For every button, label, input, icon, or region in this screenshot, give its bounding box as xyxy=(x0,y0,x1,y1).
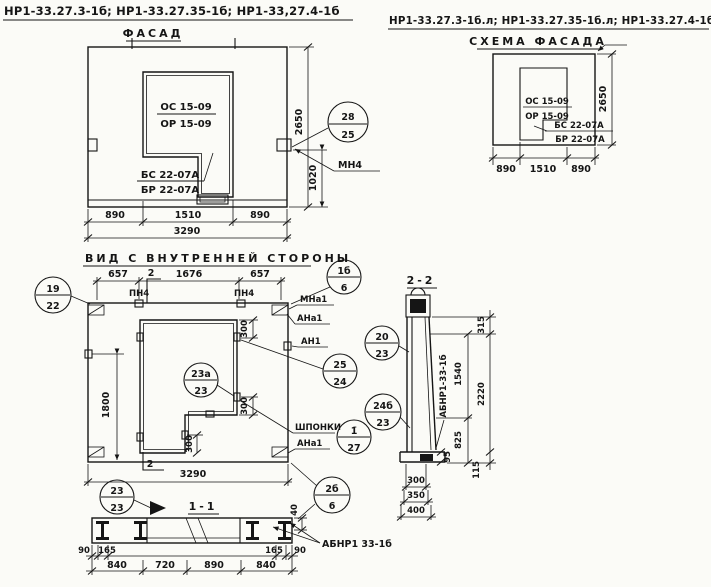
doc-title-left: НР1-33.27.3-1б; НР1-33.27.35-1б; НР1-33,… xyxy=(4,4,340,18)
svg-text:1̄: 1̄ xyxy=(351,426,358,437)
dim-350: 350 xyxy=(407,491,425,501)
dim-1800: 1800 xyxy=(101,391,112,418)
label-keys: ШПОНКИ xyxy=(295,423,341,433)
svg-text:23: 23 xyxy=(376,418,389,429)
svg-text:2б: 2б xyxy=(325,484,339,495)
pn4-left: ПН4 xyxy=(129,289,149,299)
svg-text:6: 6 xyxy=(341,283,348,294)
dim-90-right: 90 xyxy=(294,546,306,556)
schema-window-mark-top: ОС 15-09 xyxy=(525,97,569,107)
schema-sill-mark-bottom: БР 22-07А xyxy=(555,135,605,145)
facade-dim-height: 2650 xyxy=(294,108,305,135)
pn4-right: ПН4 xyxy=(234,289,254,299)
section22-mark: АБНР1-33-1б xyxy=(438,354,449,417)
schema-dim-height: 2650 xyxy=(598,85,609,112)
svg-text:23: 23 xyxy=(110,486,123,497)
svg-text:22: 22 xyxy=(46,301,59,312)
dim-657-right: 657 xyxy=(250,269,270,280)
dim-40: 40 xyxy=(290,504,300,516)
header-right: НР1-33.27.3-1б.л; НР1-33.27.35-1б.л; НР1… xyxy=(388,15,711,49)
dim-3290-internal: 3290 xyxy=(180,469,207,480)
drawing-sheet: НР1-33.27.3-1б; НР1-33.27.35-1б; НР1-33,… xyxy=(0,0,711,587)
section-2-flag-bottom: 2 xyxy=(143,452,164,470)
svg-text:20: 20 xyxy=(375,332,389,343)
facade-dim-left: 890 xyxy=(105,210,125,221)
dim-1540: 1540 xyxy=(454,362,464,386)
dim-115: 115 xyxy=(472,461,482,479)
svg-text:27: 27 xyxy=(347,443,360,454)
svg-text:1б: 1б xyxy=(337,266,351,277)
facade-view: ОС 15-09 ОР 15-09 БС 22-07А БР 22-07А 89… xyxy=(84,38,380,242)
dim-400: 400 xyxy=(407,506,425,516)
facade-left-anchor xyxy=(88,139,97,151)
dim-300-s22: 300 xyxy=(407,476,425,486)
callout-1-27: 1̄ 27 xyxy=(337,420,371,454)
callout-24b-23: 24б 23 xyxy=(365,394,410,430)
dim-1676: 1676 xyxy=(176,269,203,280)
svg-text:23: 23 xyxy=(194,386,207,397)
dim-165-left: 165 xyxy=(98,546,116,556)
svg-text:23а: 23а xyxy=(191,369,211,380)
doc-title-right: НР1-33.27.3-1б.л; НР1-33.27.35-1б.л; НР1… xyxy=(389,15,711,27)
dim-840-a: 840 xyxy=(107,560,127,571)
svg-text:23: 23 xyxy=(110,503,123,514)
dim-2220: 2220 xyxy=(477,382,487,406)
svg-text:25: 25 xyxy=(333,360,346,371)
facade-window-mark-bottom: ОР 15-09 xyxy=(160,119,211,130)
dim-165-right: 165 xyxy=(265,546,283,556)
label-ana1-bottom: АНа1 xyxy=(297,439,322,449)
facade-sill-mark-top: БС 22-07А xyxy=(141,170,199,181)
section-2-2: 2-2 95 АБНР1-33-1б 1540 825 315 xyxy=(397,274,496,521)
facade-anchor-label: МН4 xyxy=(338,160,362,171)
section-1-1-title: 1-1 xyxy=(189,500,218,513)
label-ana1-top: АНа1 xyxy=(297,314,322,324)
facade-right-anchor xyxy=(277,139,291,151)
facade-window-mark-top: ОС 15-09 xyxy=(160,102,211,113)
internal-view: ВИД С ВНУТРЕННЕЙ СТОРОНЫ 300 300 xyxy=(35,252,410,519)
dim-90-left: 90 xyxy=(78,546,90,556)
callout-23a-23: 23а 23 xyxy=(184,363,234,397)
section-2-2-title: 2-2 xyxy=(407,274,436,287)
callout-19-22: 19 22 xyxy=(35,277,90,313)
svg-text:24: 24 xyxy=(333,377,347,388)
dim-315: 315 xyxy=(477,316,487,334)
callout-23-23: 23 23 xyxy=(100,480,166,515)
svg-text:24б: 24б xyxy=(373,401,393,412)
facade-dim-right: 890 xyxy=(250,210,270,221)
schema-dim-mid: 1510 xyxy=(530,164,557,175)
facade-dim-mid: 1510 xyxy=(175,210,202,221)
facade-sill-mark-bottom: БР 22-07А xyxy=(141,185,199,196)
svg-text:25: 25 xyxy=(341,130,354,141)
label-an1: АН1 xyxy=(301,337,321,347)
schema-view: ОС 15-09 ОР 15-09 БС 22-07А БР 22-07А 89… xyxy=(489,45,627,175)
dim-890: 890 xyxy=(204,560,224,571)
dim-825: 825 xyxy=(454,431,464,449)
view-flag xyxy=(150,501,166,515)
svg-text:28: 28 xyxy=(341,112,355,123)
dim-840-b: 840 xyxy=(256,560,276,571)
header-left: НР1-33.27.3-1б; НР1-33.27.35-1б; НР1-33,… xyxy=(3,4,353,41)
svg-text:23: 23 xyxy=(375,349,388,360)
internal-title: ВИД С ВНУТРЕННЕЙ СТОРОНЫ xyxy=(85,252,351,265)
schema-dim-right: 890 xyxy=(571,164,591,175)
facade-dim-lower: 1020 xyxy=(308,164,319,191)
svg-text:6: 6 xyxy=(329,501,336,512)
label-mna1: МНа1 xyxy=(300,295,327,305)
dim-720: 720 xyxy=(155,560,175,571)
dim-300-a: 300 xyxy=(240,320,250,338)
callout-20-23: 20 23 xyxy=(365,326,409,360)
dim-300-c: 300 xyxy=(185,435,195,453)
schema-dim-left: 890 xyxy=(496,164,516,175)
schema-sill-mark-top: БС 22-07А xyxy=(554,121,604,131)
facade-dim-total: 3290 xyxy=(174,226,201,237)
dim-95: 95 xyxy=(443,451,453,463)
svg-text:19: 19 xyxy=(46,284,59,295)
dim-657-left: 657 xyxy=(108,269,128,280)
svg-text:2: 2 xyxy=(148,268,155,279)
schema-title: СХЕМА ФАСАДА xyxy=(469,35,607,48)
svg-text:2: 2 xyxy=(147,459,154,470)
section11-mark: АБНР1 33-1б xyxy=(322,539,392,550)
section-1-1: 1-1 40 АБНР1 33-1б 23 23 xyxy=(78,480,392,575)
